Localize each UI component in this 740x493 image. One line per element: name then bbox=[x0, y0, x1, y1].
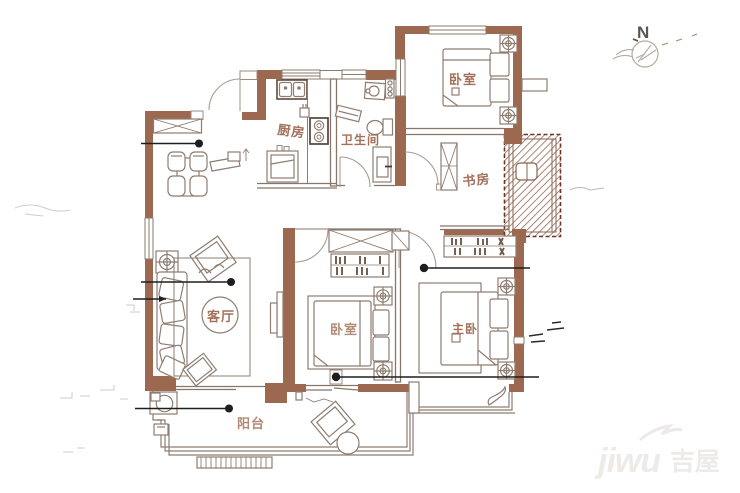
svg-text:卫生间: 卫生间 bbox=[341, 132, 380, 147]
svg-text:jiwu: jiwu bbox=[594, 442, 661, 480]
svg-text:吉屋: 吉屋 bbox=[670, 448, 720, 476]
svg-text:客厅: 客厅 bbox=[207, 309, 235, 324]
svg-text:阳台: 阳台 bbox=[237, 416, 265, 431]
svg-text:卧室: 卧室 bbox=[449, 72, 477, 87]
svg-text:书房: 书房 bbox=[462, 171, 491, 189]
svg-text:卧室: 卧室 bbox=[330, 322, 358, 337]
svg-text:主卧: 主卧 bbox=[452, 321, 478, 336]
svg-text:N: N bbox=[637, 23, 649, 42]
